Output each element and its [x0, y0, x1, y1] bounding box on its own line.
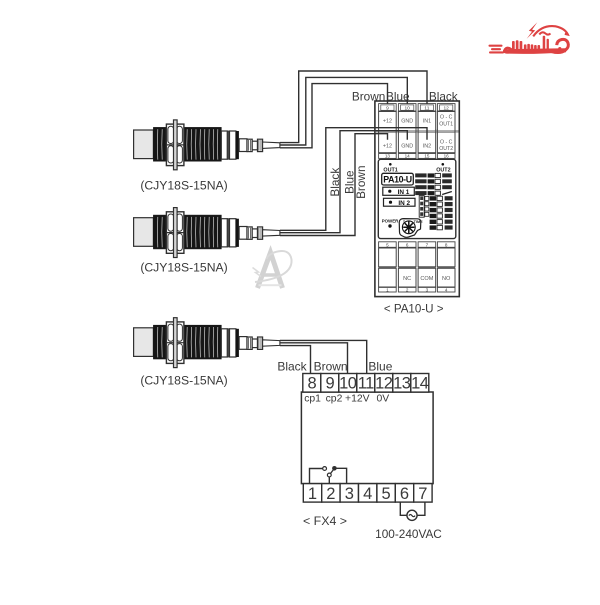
svg-text:(CJY18S-15NA): (CJY18S-15NA) [140, 179, 227, 193]
svg-text:Blue: Blue [368, 359, 392, 373]
svg-text:8: 8 [307, 375, 316, 393]
svg-text:COM: COM [420, 276, 433, 282]
svg-text:13: 13 [385, 154, 391, 159]
svg-text:4: 4 [363, 485, 372, 503]
svg-text:11: 11 [358, 375, 374, 393]
svg-text:(CJY18S-15NA): (CJY18S-15NA) [140, 374, 227, 388]
svg-text:+12V: +12V [345, 394, 370, 405]
svg-text:O - C: O - C [440, 115, 453, 121]
svg-text:TIME: TIME [414, 220, 424, 224]
svg-text:4: 4 [445, 287, 448, 292]
svg-text:11: 11 [424, 106, 429, 112]
svg-text:3: 3 [426, 287, 429, 292]
svg-text:Brown: Brown [314, 359, 348, 373]
svg-text:OUT2: OUT2 [436, 167, 450, 173]
svg-text:GND: GND [401, 118, 413, 124]
svg-text:6: 6 [400, 485, 409, 503]
svg-text:cp1: cp1 [304, 394, 321, 405]
svg-text:POWER: POWER [382, 218, 399, 223]
svg-text:7: 7 [426, 242, 429, 247]
svg-text:< PA10-U >: < PA10-U > [384, 302, 444, 315]
svg-text:7: 7 [418, 485, 427, 503]
svg-text:14: 14 [411, 375, 429, 393]
svg-text:(CJY18S-15NA): (CJY18S-15NA) [140, 260, 227, 274]
svg-text:IN 1: IN 1 [398, 189, 410, 196]
svg-text:< FX4 >: < FX4 > [303, 514, 347, 528]
svg-text:6: 6 [406, 242, 409, 247]
svg-text:10: 10 [339, 375, 357, 393]
svg-text:12: 12 [444, 106, 450, 112]
svg-text:cp2: cp2 [326, 394, 343, 405]
svg-text:3: 3 [345, 485, 354, 503]
svg-text:0: 0 [403, 220, 405, 224]
svg-text:1: 1 [386, 287, 389, 292]
svg-text:5: 5 [386, 242, 389, 247]
svg-text:IN2: IN2 [423, 144, 431, 150]
svg-text:PA10-U: PA10-U [383, 174, 412, 184]
svg-text:10: 10 [405, 106, 411, 112]
svg-text:8: 8 [445, 242, 448, 247]
svg-text:IN1: IN1 [423, 118, 431, 124]
svg-text:100-240VAC: 100-240VAC [375, 527, 442, 541]
svg-text:16: 16 [444, 154, 450, 159]
svg-text:Brown: Brown [354, 165, 368, 198]
svg-text:OUT1: OUT1 [383, 167, 397, 173]
svg-text:O - C: O - C [440, 140, 453, 146]
svg-text:Black: Black [277, 359, 307, 373]
svg-text:IN 2: IN 2 [398, 200, 410, 207]
svg-text:13: 13 [393, 375, 411, 393]
svg-text:14: 14 [405, 154, 411, 159]
svg-text:9: 9 [386, 106, 389, 112]
svg-text:NC: NC [403, 276, 411, 282]
svg-text:12: 12 [375, 375, 393, 393]
svg-text:2: 2 [326, 485, 335, 503]
svg-text:5: 5 [382, 485, 391, 503]
svg-text:OUT2: OUT2 [439, 146, 453, 152]
svg-text:OUT1: OUT1 [439, 121, 453, 127]
svg-text:1: 1 [308, 485, 317, 503]
svg-text:9: 9 [325, 375, 334, 393]
svg-text:+12: +12 [383, 144, 392, 150]
svg-text:NO: NO [442, 276, 451, 282]
svg-text:0V: 0V [376, 394, 389, 405]
svg-text:15: 15 [424, 154, 430, 159]
svg-text:2: 2 [406, 287, 409, 292]
svg-text:+12: +12 [383, 118, 392, 124]
svg-text:GND: GND [401, 144, 413, 150]
